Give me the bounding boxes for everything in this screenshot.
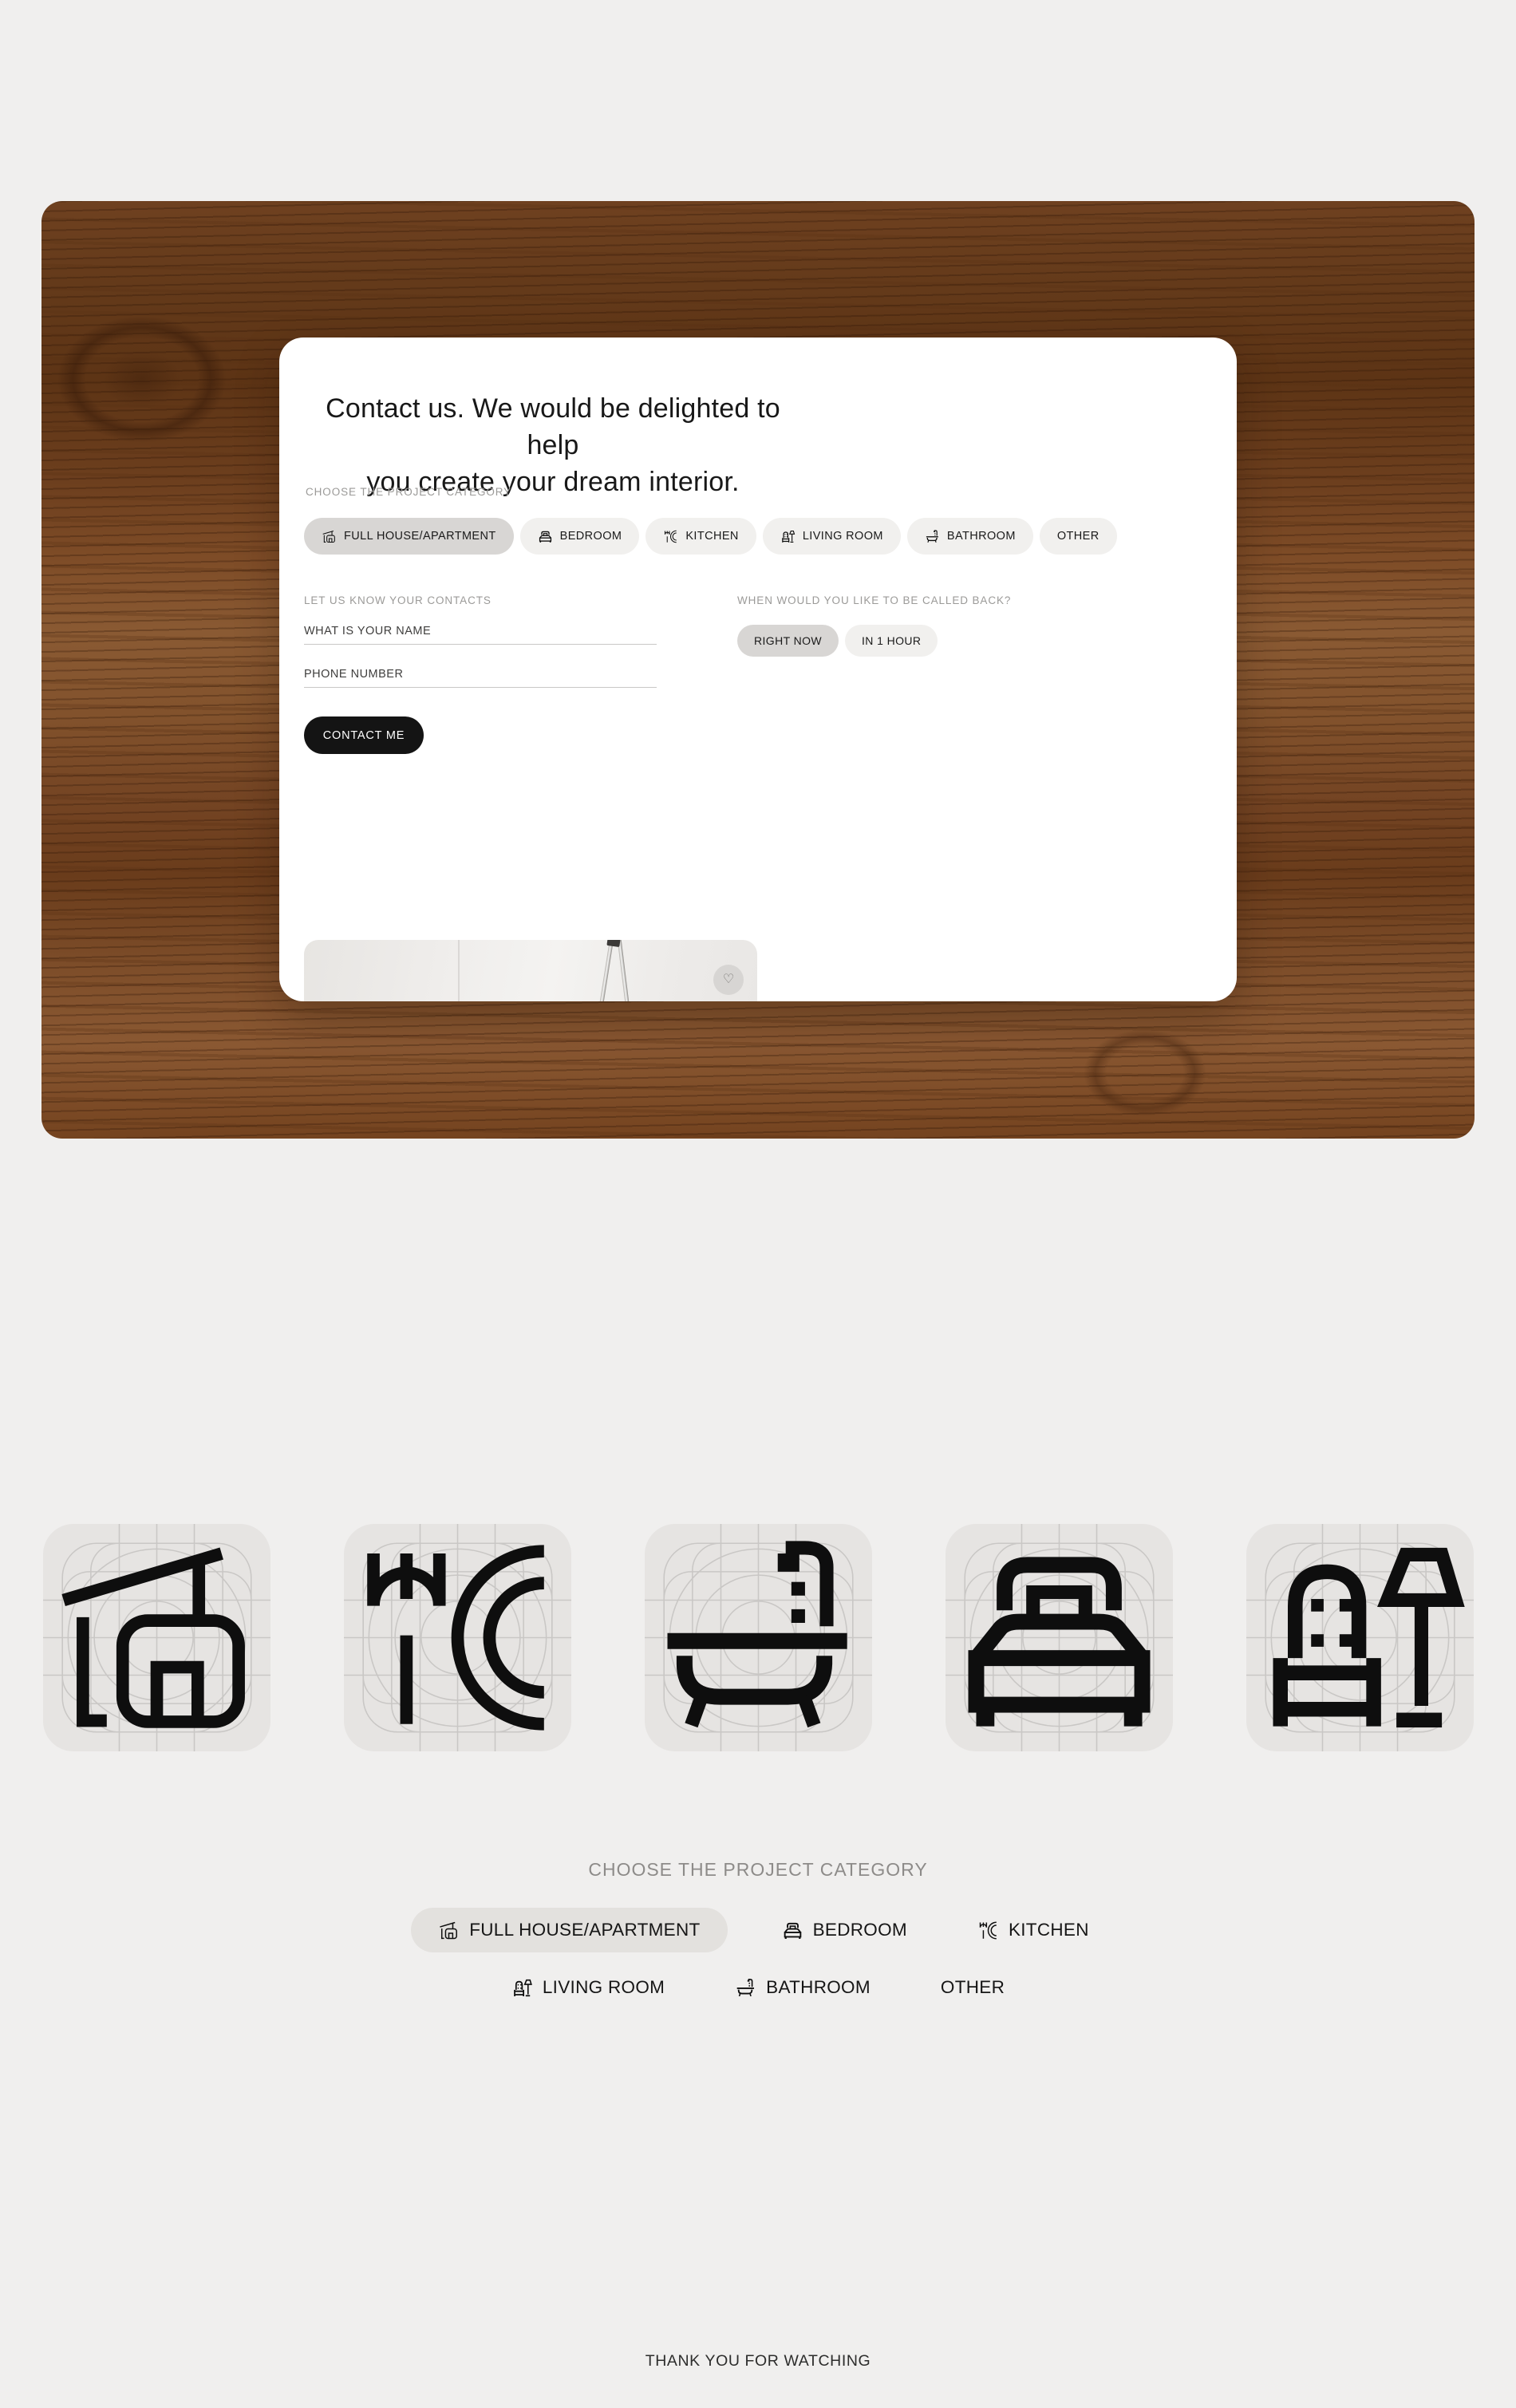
bath-icon <box>735 1977 756 1999</box>
house-icon <box>43 1524 270 1751</box>
icon-tile-living <box>1246 1524 1474 1751</box>
house-icon <box>322 529 337 544</box>
heart-icon: ♡ <box>723 973 734 986</box>
category-chip-group: FULL HOUSE/APARTMENTBEDROOMKITCHENLIVING… <box>304 518 1117 555</box>
phone-input[interactable] <box>304 661 657 688</box>
icon-tile-row <box>0 1524 1516 1751</box>
icon-tile-house <box>43 1524 270 1751</box>
name-input[interactable] <box>304 618 657 645</box>
chip-label: LIVING ROOM <box>803 530 883 543</box>
category-chip-bedroom[interactable]: BEDROOM <box>520 518 640 555</box>
living-icon <box>1246 1524 1474 1751</box>
house-icon <box>438 1920 460 1941</box>
photo-lamp-leg <box>595 940 614 1001</box>
chip-label: RIGHT NOW <box>754 634 822 647</box>
bed-icon <box>782 1920 803 1941</box>
showcase-label: CHOOSE THE PROJECT CATEGORY <box>0 1859 1516 1881</box>
icon-tile-bath <box>645 1524 872 1751</box>
showcase-chip-row: FULL HOUSE/APARTMENTBEDROOMKITCHEN <box>0 1908 1516 1952</box>
icon-tile-bed <box>946 1524 1173 1751</box>
chip-label: FULL HOUSE/APARTMENT <box>469 1920 700 1940</box>
showcase-section: CHOOSE THE PROJECT CATEGORY FULL HOUSE/A… <box>0 1859 1516 2010</box>
chip-label: OTHER <box>941 1977 1005 1998</box>
showcase-chip-other[interactable]: OTHER <box>925 1965 1021 2010</box>
showcase-chip-bedroom[interactable]: BEDROOM <box>766 1908 923 1952</box>
kitchen-icon <box>977 1920 999 1941</box>
contacts-section-label: LET US KNOW YOUR CONTACTS <box>304 594 657 606</box>
bath-icon <box>925 529 940 544</box>
chip-label: BEDROOM <box>560 530 622 543</box>
category-chip-other[interactable]: OTHER <box>1040 518 1117 555</box>
chip-label: LIVING ROOM <box>543 1977 665 1998</box>
contact-card: Contact us. We would be delighted to hel… <box>279 338 1237 1001</box>
wood-background-panel: Contact us. We would be delighted to hel… <box>41 201 1475 1139</box>
kitchen-icon <box>663 529 678 544</box>
showcase-chip-kitchen[interactable]: KITCHEN <box>961 1908 1105 1952</box>
showcase-chip-rows: FULL HOUSE/APARTMENTBEDROOMKITCHENLIVING… <box>0 1908 1516 2010</box>
category-chip-kitchen[interactable]: KITCHEN <box>645 518 756 555</box>
photo-wall-corner <box>458 940 460 1001</box>
photo-lamp-leg <box>617 940 633 1001</box>
category-chip-full-house-apartment[interactable]: FULL HOUSE/APARTMENT <box>304 518 514 555</box>
footer-text: THANK YOU FOR WATCHING <box>0 2352 1516 2370</box>
bed-icon <box>538 529 553 544</box>
gallery-photo: ♡ <box>304 940 757 1001</box>
callback-section-label: WHEN WOULD YOU LIKE TO BE CALLED BACK? <box>737 594 1011 606</box>
callback-chip-group: RIGHT NOWIN 1 HOUR <box>737 625 1011 657</box>
bath-icon <box>645 1524 872 1751</box>
chip-label: IN 1 HOUR <box>862 634 921 647</box>
page-title: Contact us. We would be delighted to hel… <box>306 390 800 500</box>
chip-label: KITCHEN <box>685 530 738 543</box>
favorite-button[interactable]: ♡ <box>713 965 744 995</box>
showcase-chip-bathroom[interactable]: BATHROOM <box>719 1965 886 2010</box>
chip-label: FULL HOUSE/APARTMENT <box>344 530 496 543</box>
showcase-chip-row: LIVING ROOMBATHROOMOTHER <box>0 1965 1516 2010</box>
category-chip-living-room[interactable]: LIVING ROOM <box>763 518 901 555</box>
bed-icon <box>946 1524 1173 1751</box>
chip-label: BATHROOM <box>766 1977 871 1998</box>
callback-chip-right-now[interactable]: RIGHT NOW <box>737 625 839 657</box>
category-chip-bathroom[interactable]: BATHROOM <box>907 518 1033 555</box>
showcase-chip-full-house-apartment[interactable]: FULL HOUSE/APARTMENT <box>411 1908 727 1952</box>
page: { "categories": [ {"id":"full-house-apar… <box>0 0 1516 2408</box>
kitchen-icon <box>344 1524 571 1751</box>
living-icon <box>780 529 796 544</box>
showcase-chip-living-room[interactable]: LIVING ROOM <box>495 1965 681 2010</box>
callback-chip-in-1-hour[interactable]: IN 1 HOUR <box>845 625 938 657</box>
contact-me-button[interactable]: CONTACT ME <box>304 716 424 754</box>
chip-label: KITCHEN <box>1009 1920 1089 1940</box>
living-icon <box>511 1977 533 1999</box>
chip-label: BATHROOM <box>947 530 1016 543</box>
chip-label: OTHER <box>1057 530 1099 543</box>
icon-tile-kitchen <box>344 1524 571 1751</box>
chip-label: BEDROOM <box>813 1920 907 1940</box>
category-section-label: CHOOSE THE PROJECT CATEGORY <box>306 486 511 498</box>
